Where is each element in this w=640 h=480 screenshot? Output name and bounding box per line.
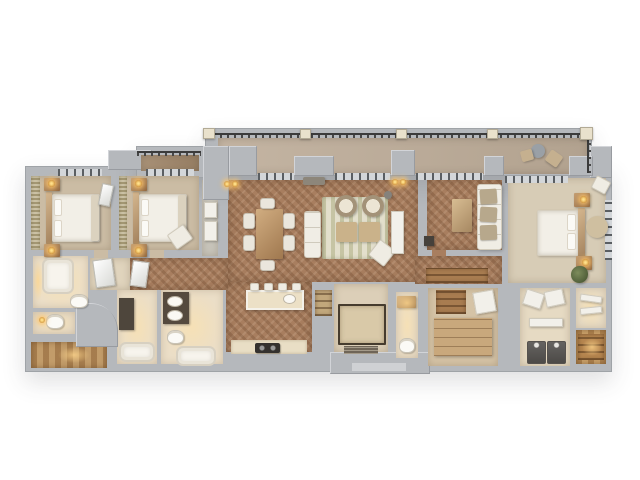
closet2-wood-rack	[436, 290, 466, 314]
master-pillow-bottom	[567, 233, 576, 250]
master-headboard	[578, 208, 585, 258]
dining-chair-left-1	[243, 213, 255, 229]
railing-post-5	[580, 127, 593, 140]
hall-bookshelf	[426, 268, 488, 283]
dining-chair-left-2	[243, 235, 255, 251]
dining-chair-right-2	[283, 235, 295, 251]
laundry-shelf	[529, 318, 563, 327]
bar-stool-2	[264, 283, 273, 291]
bathtub-1	[42, 258, 74, 294]
hall-leaning-mirror-2	[129, 260, 149, 288]
railing-post-4	[487, 129, 498, 139]
dining-chair-head-top	[260, 198, 275, 209]
closet2-island-dresser	[434, 318, 492, 356]
den-side-table	[424, 236, 434, 246]
bedroom1-door-gap	[94, 250, 108, 258]
living-armchair-2	[362, 195, 384, 217]
wardrobe-shelf-2	[204, 221, 217, 241]
entry-door-step	[352, 363, 406, 371]
living-ottoman-1	[336, 222, 357, 242]
living-window-1	[258, 173, 294, 180]
closet2-white-shelf	[472, 289, 497, 314]
entry-doormat	[344, 346, 378, 354]
balcony-railing	[137, 151, 201, 156]
bed2-lamp-top	[135, 180, 142, 187]
dining-chair-right-1	[283, 213, 295, 229]
toilet-1	[70, 294, 88, 308]
living-sofa	[304, 211, 321, 258]
bath1-vanity-glow	[33, 260, 43, 302]
ceiling-spot-1	[224, 181, 230, 187]
master-pillow-top	[567, 214, 576, 231]
dining-table	[256, 209, 283, 259]
bar-stool-4	[292, 283, 301, 291]
bed1-lamp-bottom	[48, 247, 55, 254]
bed1-pillow-top	[54, 199, 62, 216]
bed1-lamp-top	[48, 180, 55, 187]
railing-post-1	[203, 128, 215, 139]
master-lamp-bottom	[582, 259, 589, 266]
terrace-corner-wall	[590, 146, 612, 178]
railing-post-2	[300, 129, 311, 139]
wardrobe-shelf-1	[204, 202, 217, 218]
bedroom2-door-gap	[150, 250, 164, 258]
master-lamp-top	[580, 196, 587, 203]
terrace-column	[203, 146, 229, 200]
dryer	[547, 341, 566, 364]
master-window-top	[505, 176, 568, 183]
floor-plan-canvas	[0, 0, 640, 480]
bathtub-2	[119, 342, 155, 362]
den-cushion-1	[479, 188, 497, 204]
ceiling-spot-3	[392, 179, 398, 185]
closet1-glow	[58, 347, 90, 363]
closet3-glow	[582, 338, 602, 356]
living-floor-lamp	[384, 191, 392, 199]
window-pier-3	[391, 150, 415, 176]
bedroom1-accent-wall	[31, 176, 40, 250]
toilet-2	[167, 330, 184, 344]
bed2-pillow-top	[141, 199, 149, 216]
window-pier-4	[484, 156, 504, 176]
cooktop	[255, 343, 280, 353]
master-plant	[571, 266, 588, 283]
bed2-lamp-bottom	[135, 247, 142, 254]
living-media-console	[391, 211, 404, 254]
den-cushion-3	[480, 225, 498, 241]
bedroom2-accent-wall	[119, 176, 127, 250]
foyer-niche-shelf	[315, 290, 332, 316]
den-cushion-2	[480, 207, 498, 223]
den-window	[416, 173, 483, 180]
dining-chair-head-bottom	[260, 260, 275, 271]
bath2-tall-cabinet	[119, 298, 134, 330]
foyer-rug	[338, 304, 386, 345]
bar-stool-1	[250, 283, 259, 291]
window-pier-2	[294, 156, 334, 176]
den-coffee-table	[452, 199, 472, 232]
wc-lamp	[39, 317, 45, 323]
washer	[527, 341, 546, 364]
hall-leaning-mirror-1	[92, 258, 116, 289]
bed2-pillow-bottom	[141, 220, 149, 237]
master-round-rug	[586, 216, 608, 238]
tv-console	[303, 177, 325, 185]
den-door-gap	[432, 250, 446, 256]
terrace-railing-right	[587, 139, 591, 173]
bed1-pillow-bottom	[54, 220, 62, 237]
bar-stool-3	[278, 283, 287, 291]
bath2-sink-1	[167, 296, 183, 307]
ceiling-spot-4	[400, 179, 406, 185]
powder-toilet	[399, 338, 415, 353]
island-sink	[283, 294, 296, 304]
powder-glow	[396, 294, 418, 312]
railing-post-3	[396, 129, 407, 139]
window-pier-1	[229, 146, 257, 176]
living-armchair-1	[335, 195, 357, 217]
living-ottoman-2	[359, 222, 380, 242]
wc-toilet	[46, 314, 64, 329]
bathtub-3	[176, 346, 216, 366]
bath2-sink-2	[167, 310, 183, 321]
ceiling-spot-2	[232, 181, 238, 187]
bedroom2-window	[146, 169, 194, 176]
living-window-2	[335, 173, 390, 180]
bedroom1-window	[58, 169, 102, 176]
